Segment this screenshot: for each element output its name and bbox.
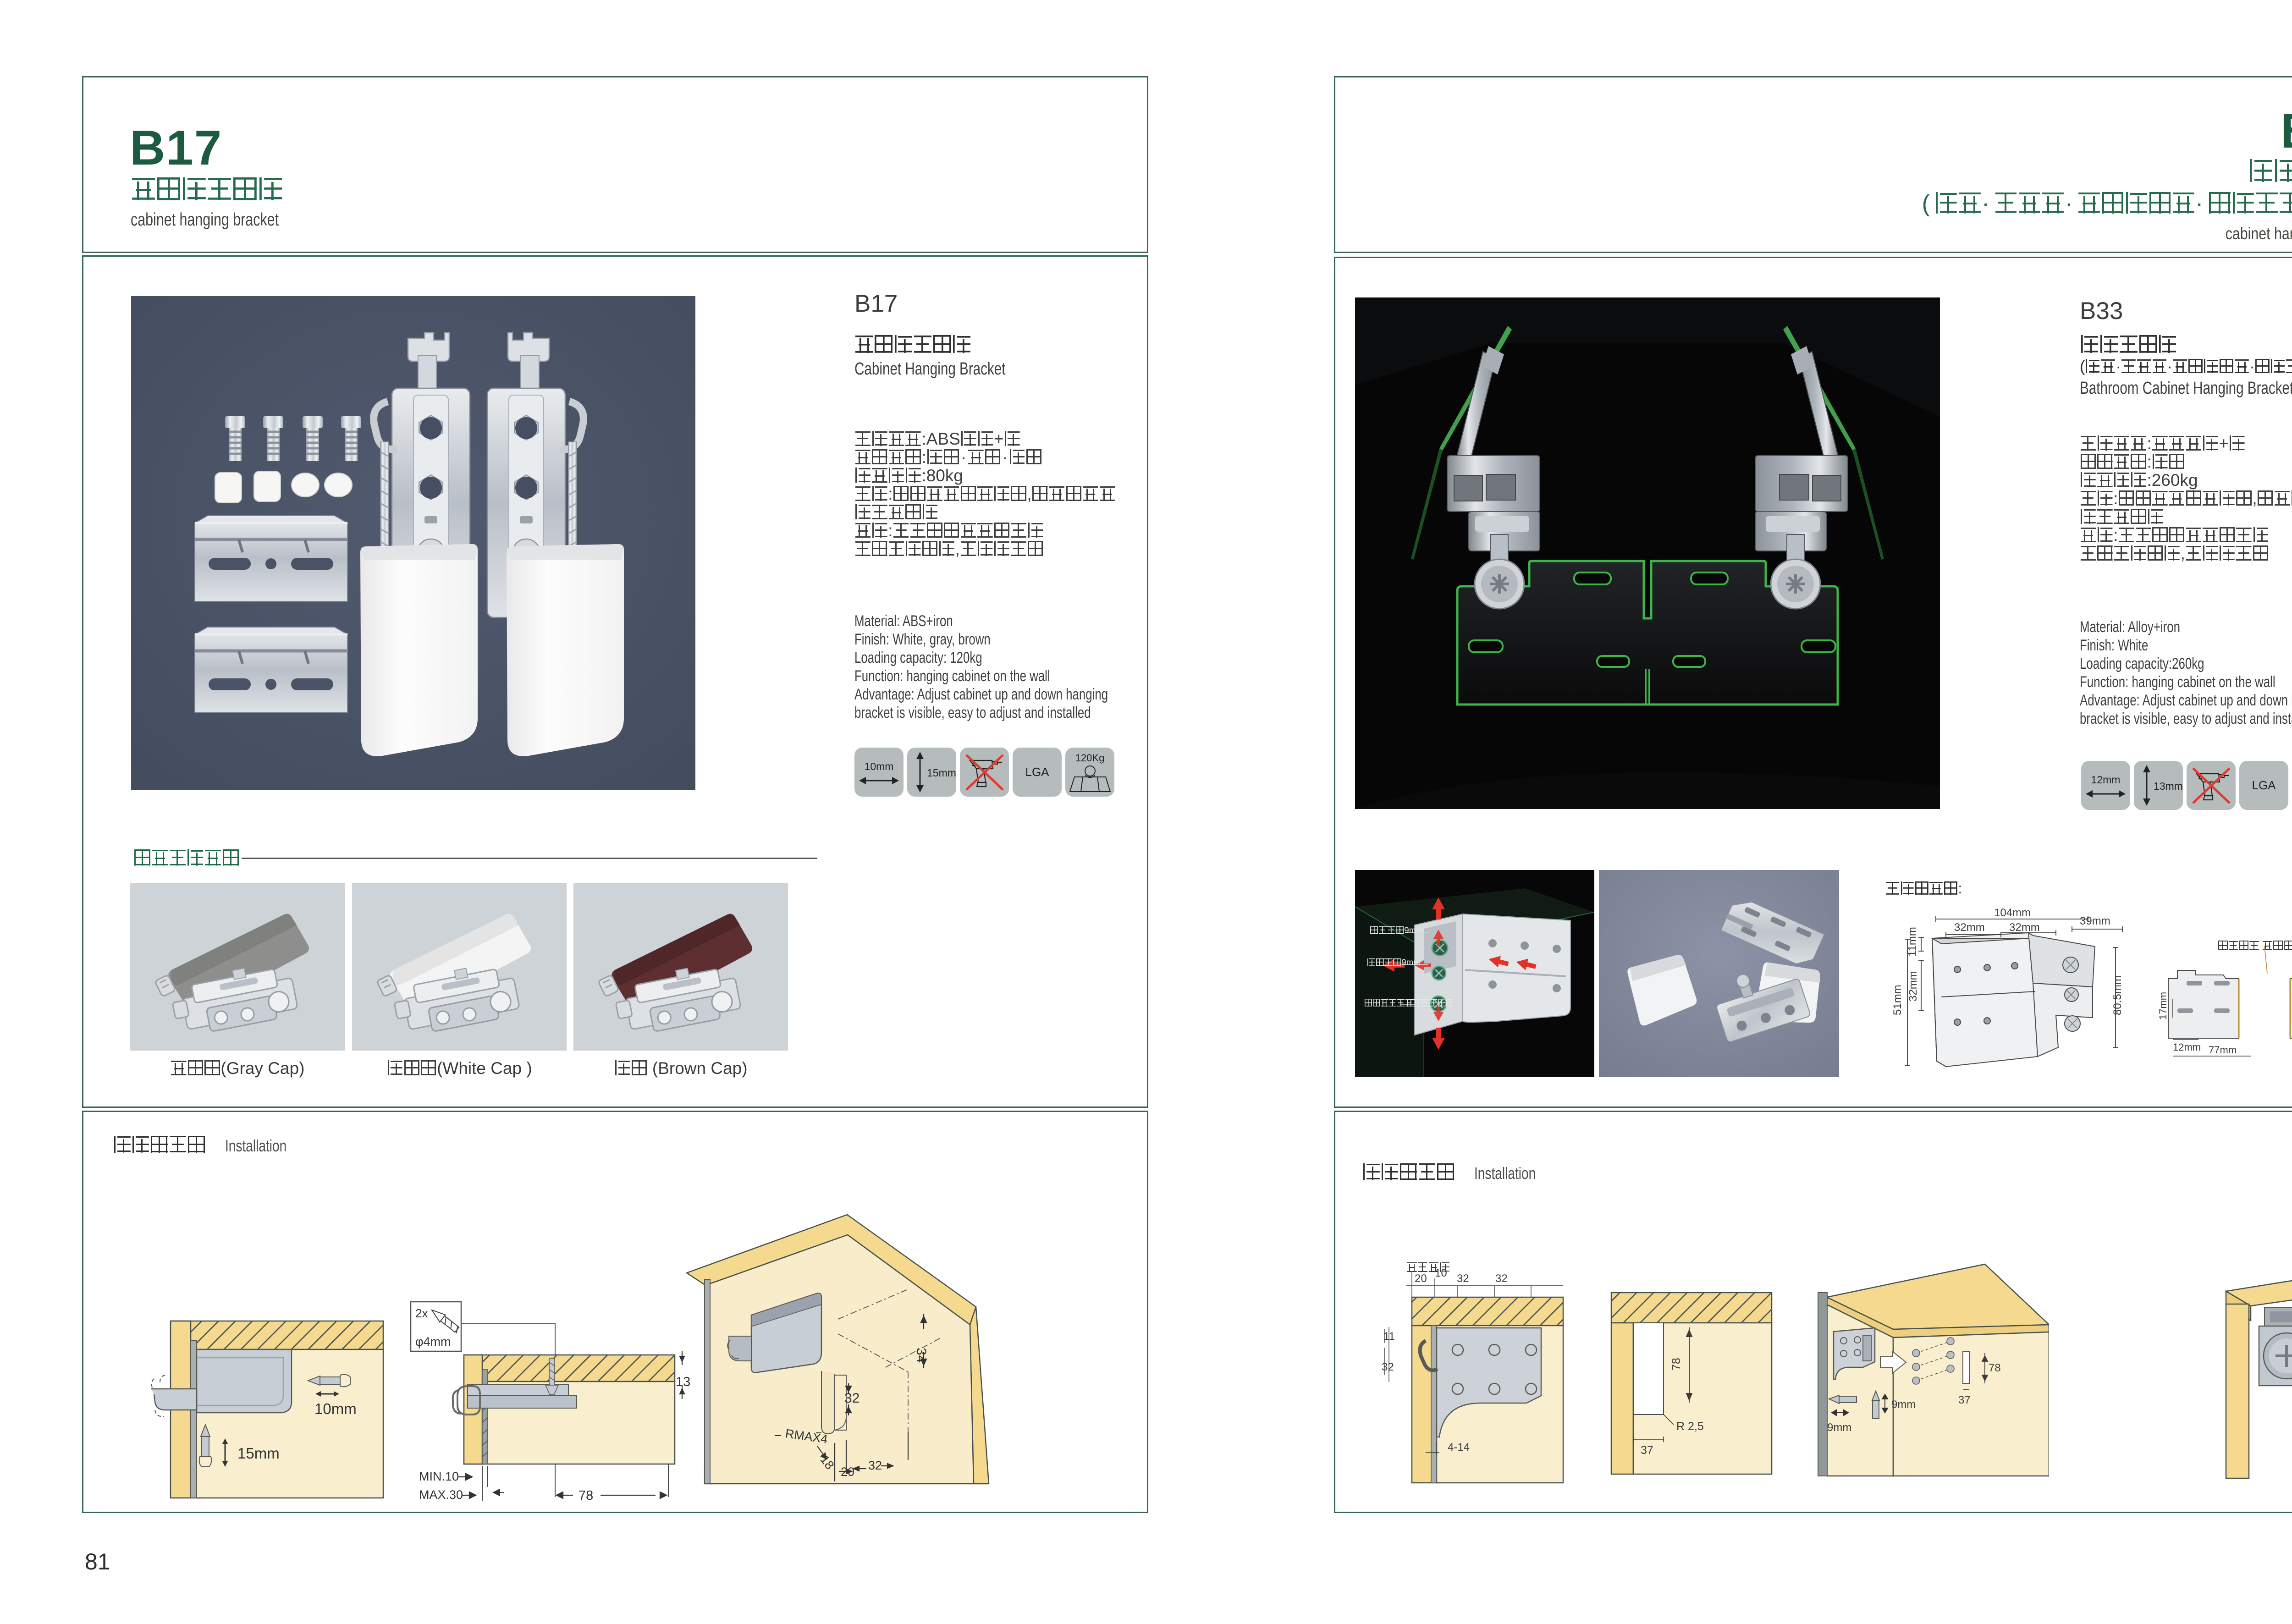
svg-text:32: 32	[844, 1391, 859, 1406]
svg-text:37: 37	[1958, 1394, 1971, 1406]
svg-text:34: 34	[914, 1348, 929, 1363]
svg-text:20: 20	[1415, 1272, 1427, 1285]
svg-text:32mm: 32mm	[2009, 921, 2040, 934]
svg-text:104mm: 104mm	[1994, 907, 2031, 919]
svg-text:15mm: 15mm	[237, 1445, 280, 1462]
svg-text:MIN.10: MIN.10	[419, 1470, 459, 1483]
svg-text:37: 37	[1641, 1444, 1653, 1457]
svg-text:32: 32	[1382, 1361, 1394, 1373]
svg-text:12mm: 12mm	[2173, 1041, 2201, 1053]
svg-text:80.5mm: 80.5mm	[2111, 975, 2124, 1015]
svg-text:MAX.30: MAX.30	[419, 1488, 463, 1502]
svg-text:51mm: 51mm	[1891, 985, 1904, 1015]
svg-text:32mm: 32mm	[1954, 921, 1985, 934]
svg-text:10mm: 10mm	[314, 1400, 357, 1417]
svg-text:R 2,5: R 2,5	[1676, 1420, 1704, 1433]
svg-text:φ4mm: φ4mm	[415, 1335, 451, 1349]
svg-text:78: 78	[1989, 1362, 2001, 1374]
svg-text:2x: 2x	[415, 1306, 428, 1320]
svg-text:10: 10	[1435, 1267, 1447, 1279]
svg-text:32: 32	[1495, 1272, 1508, 1285]
svg-text:32: 32	[868, 1459, 882, 1472]
svg-text:39mm: 39mm	[2080, 915, 2110, 927]
svg-text:9mm: 9mm	[1827, 1421, 1851, 1434]
svg-text:17mm: 17mm	[2159, 992, 2169, 1020]
svg-text:78: 78	[579, 1488, 593, 1503]
svg-text:9mm: 9mm	[1891, 1398, 1916, 1411]
svg-text:78: 78	[1670, 1358, 1683, 1371]
svg-text:11mm: 11mm	[1906, 927, 1918, 957]
svg-text:4-14: 4-14	[1448, 1441, 1470, 1453]
svg-text:77mm: 77mm	[2209, 1044, 2237, 1056]
svg-text:32mm: 32mm	[1907, 971, 1919, 1002]
svg-text:32: 32	[1457, 1272, 1469, 1285]
